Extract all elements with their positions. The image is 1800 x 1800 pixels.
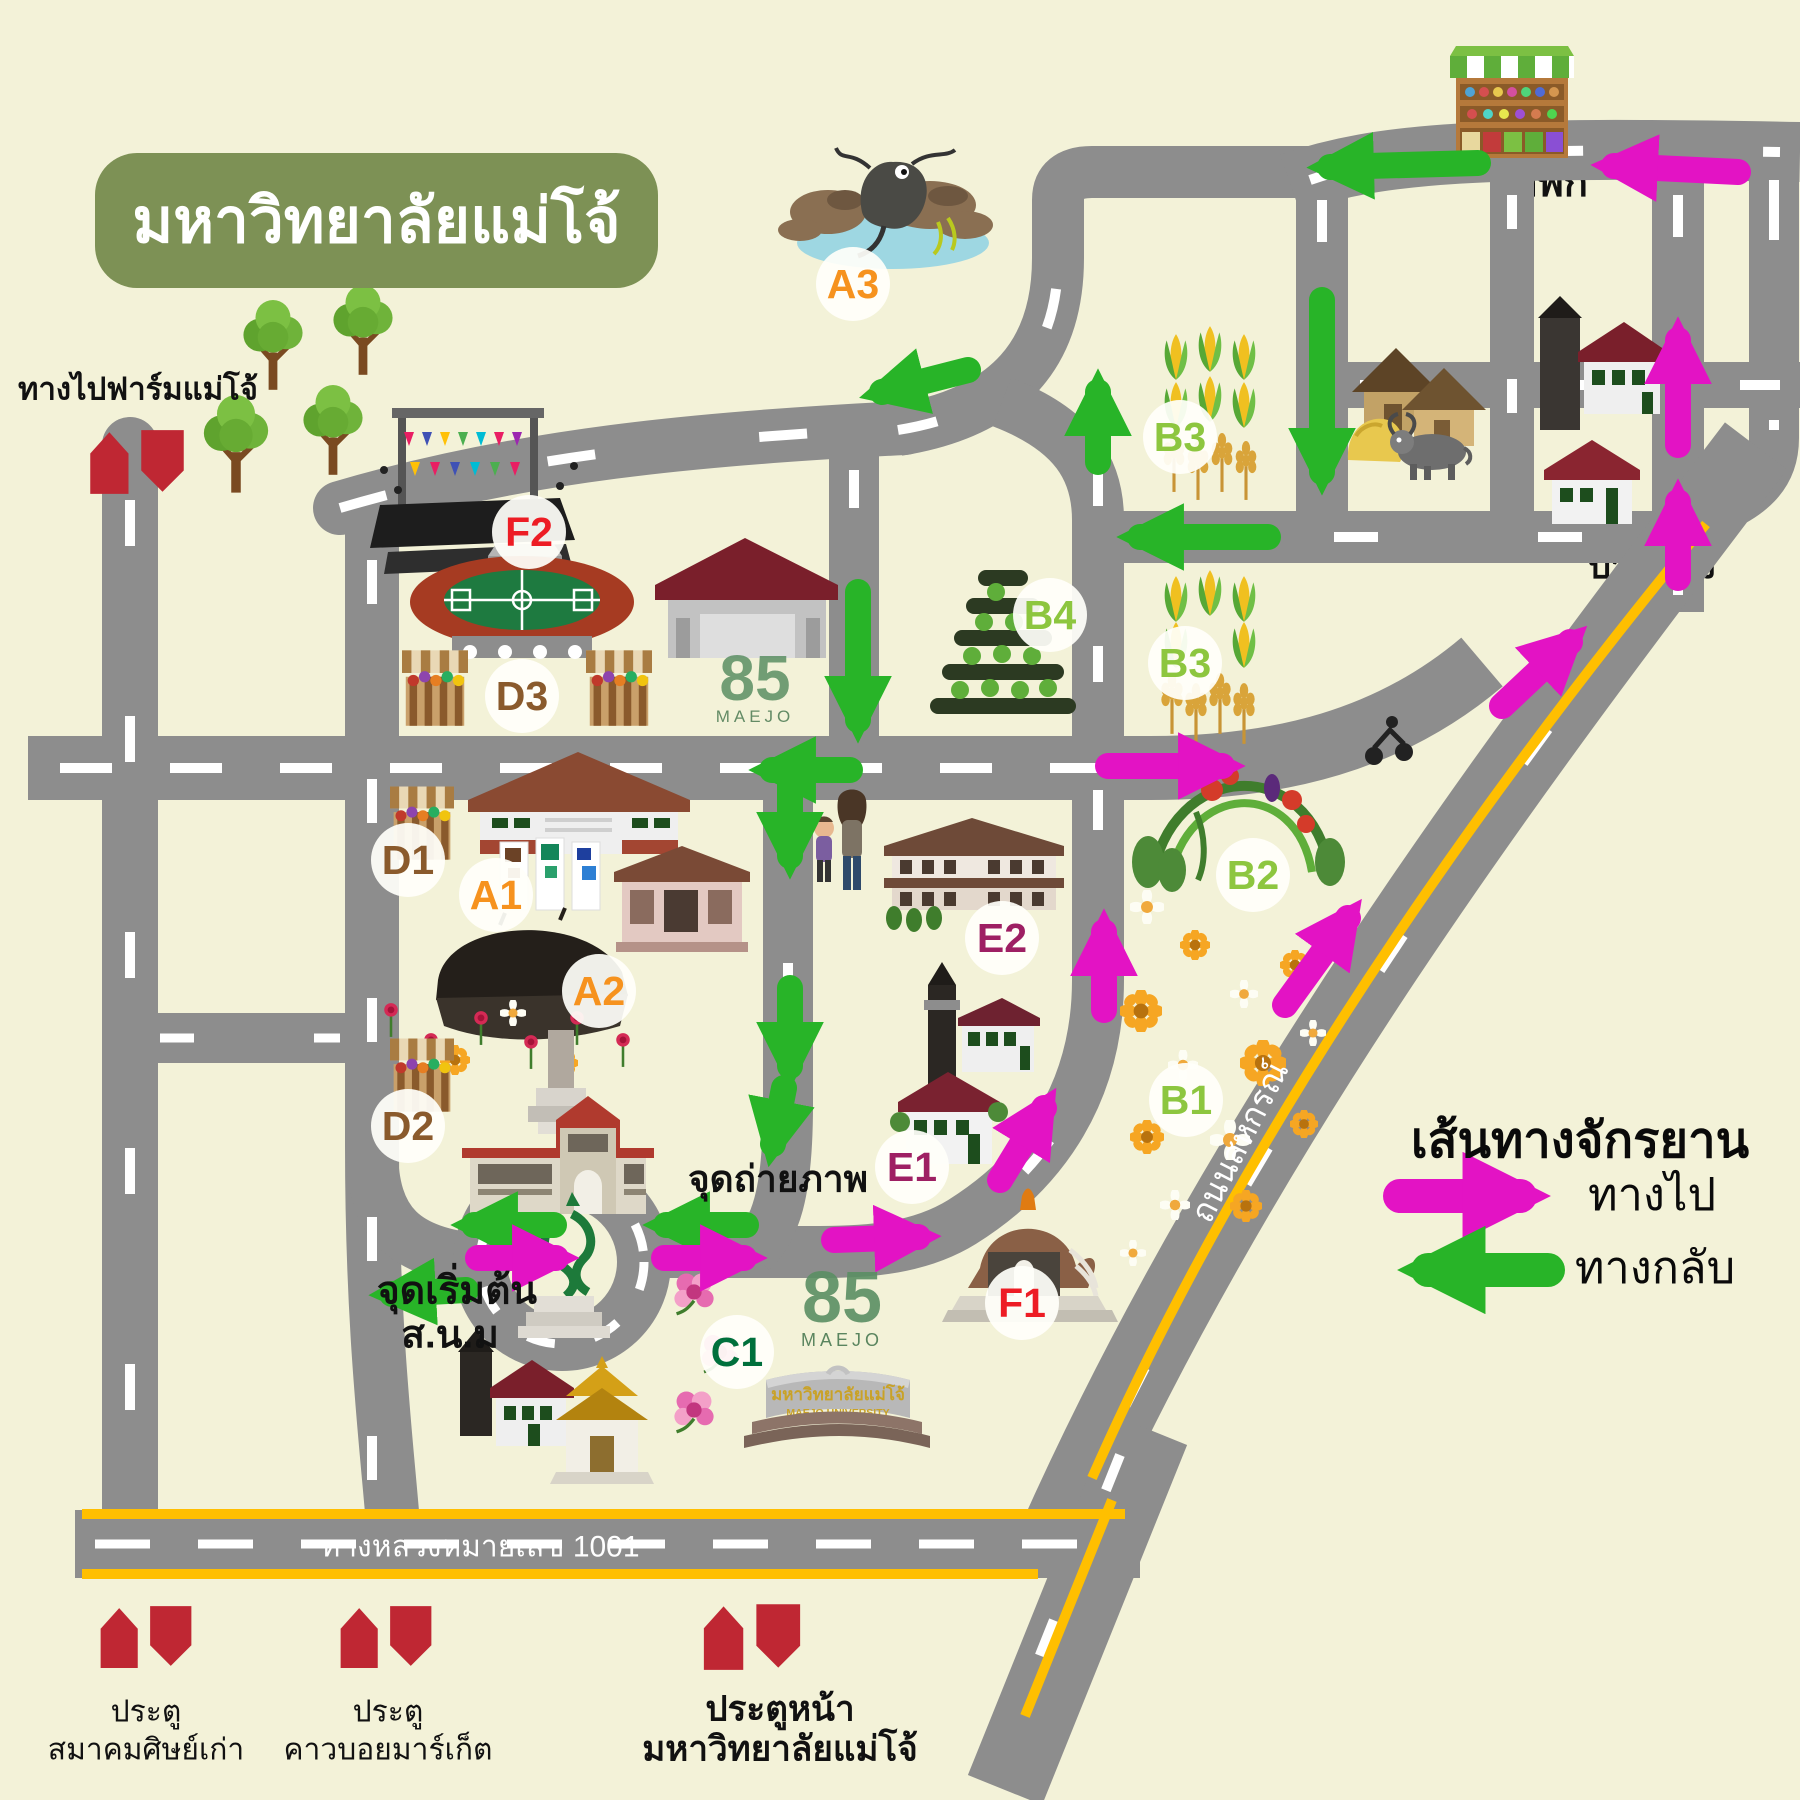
map-label-start-point-line2: ส.น.ม <box>401 1316 499 1357</box>
map-label-photo-point: จุดถ่ายภาพ <box>688 1161 868 1200</box>
svg-text:85: 85 <box>802 1258 882 1338</box>
map-label-gate3-line2: มหาวิทยาลัยแม่โจ้ <box>642 1732 918 1769</box>
ne-church-icon <box>1538 296 1668 524</box>
map-label-highway-1001: ทางหลวงหมายเลข 1001 <box>320 1531 639 1563</box>
map-label-gate3-line1: ประตูหน้า <box>705 1692 854 1729</box>
map-title: มหาวิทยาลัยแม่โจ้ <box>132 172 620 270</box>
poi-marker-c1: C1 <box>700 1315 774 1389</box>
poi-marker-b3: B3 <box>1143 400 1217 474</box>
svg-text:MAEJO: MAEJO <box>801 1330 883 1350</box>
poi-marker-f1: F1 <box>985 1266 1059 1340</box>
poi-marker-f2: F2 <box>492 495 566 569</box>
front-gate-icon <box>704 1604 800 1670</box>
return-arrow <box>1330 163 1478 167</box>
outbound-arrow <box>834 1237 918 1240</box>
map-label-start-point-line1: จุดเริ่มต้น <box>377 1272 537 1313</box>
svg-text:มหาวิทยาลัยแม่โจ้: มหาวิทยาลัยแม่โจ้ <box>771 1384 905 1404</box>
poi-marker-a1: A1 <box>459 858 533 932</box>
awning <box>1450 46 1574 78</box>
poi-marker-e1: E1 <box>875 1130 949 1204</box>
poi-marker-b3: B3 <box>1148 626 1222 700</box>
gold-temple-icon <box>550 1356 654 1484</box>
legend-arrows <box>1400 1196 1548 1270</box>
poi-marker-b4: B4 <box>1013 578 1087 652</box>
logo-85-gate: 85 MAEJO <box>801 1258 883 1350</box>
market-stand-icon <box>1450 46 1574 158</box>
svg-text:MAEJO: MAEJO <box>716 707 795 726</box>
svg-text:85: 85 <box>719 642 790 714</box>
visitors-icon <box>814 790 866 891</box>
return-arrow <box>773 1088 784 1144</box>
poi-marker-a2: A2 <box>562 954 636 1028</box>
map-label-gate1-line2: สมาคมศิษย์เก่า <box>48 1734 244 1766</box>
map-label-farm-direction: ทางไปฟาร์มแม่โจ้ <box>18 374 258 407</box>
outbound-arrow <box>1614 166 1738 172</box>
logo-85-stadium: 85 MAEJO <box>716 642 795 726</box>
poi-marker-b1: B1 <box>1149 1063 1223 1137</box>
poi-marker-d3: D3 <box>485 659 559 733</box>
poi-marker-a3: A3 <box>816 247 890 321</box>
catfish-pond-icon <box>778 148 993 269</box>
map-title-badge: มหาวิทยาลัยแม่โจ้ <box>95 153 658 288</box>
poi-marker-e2: E2 <box>965 901 1039 975</box>
university-gate-sign: มหาวิทยาลัยแม่โจ้ MAEJO UNIVERSITY <box>744 1368 930 1448</box>
map-label-gate2-line1: ประตู <box>353 1696 424 1728</box>
assembly-hall-icon <box>655 538 838 658</box>
museum-icon <box>614 846 750 952</box>
legend-outbound-label: ทางไป <box>1588 1158 1716 1230</box>
cowboy-gate-icon <box>341 1606 432 1668</box>
poi-marker-b2: B2 <box>1216 838 1290 912</box>
road-stage-curve <box>340 428 905 508</box>
legend-return-label: ทางกลับ <box>1575 1231 1735 1303</box>
campus-bike-route-map: 85 MAEJO <box>0 0 1800 1800</box>
map-label-gate2-line2: คาวบอยมาร์เก็ต <box>283 1734 492 1766</box>
map-label-gate1-line1: ประตู <box>111 1696 182 1728</box>
poi-marker-d1: D1 <box>371 823 445 897</box>
alumni-gate-icon <box>101 1606 192 1668</box>
poi-marker-d2: D2 <box>371 1089 445 1163</box>
